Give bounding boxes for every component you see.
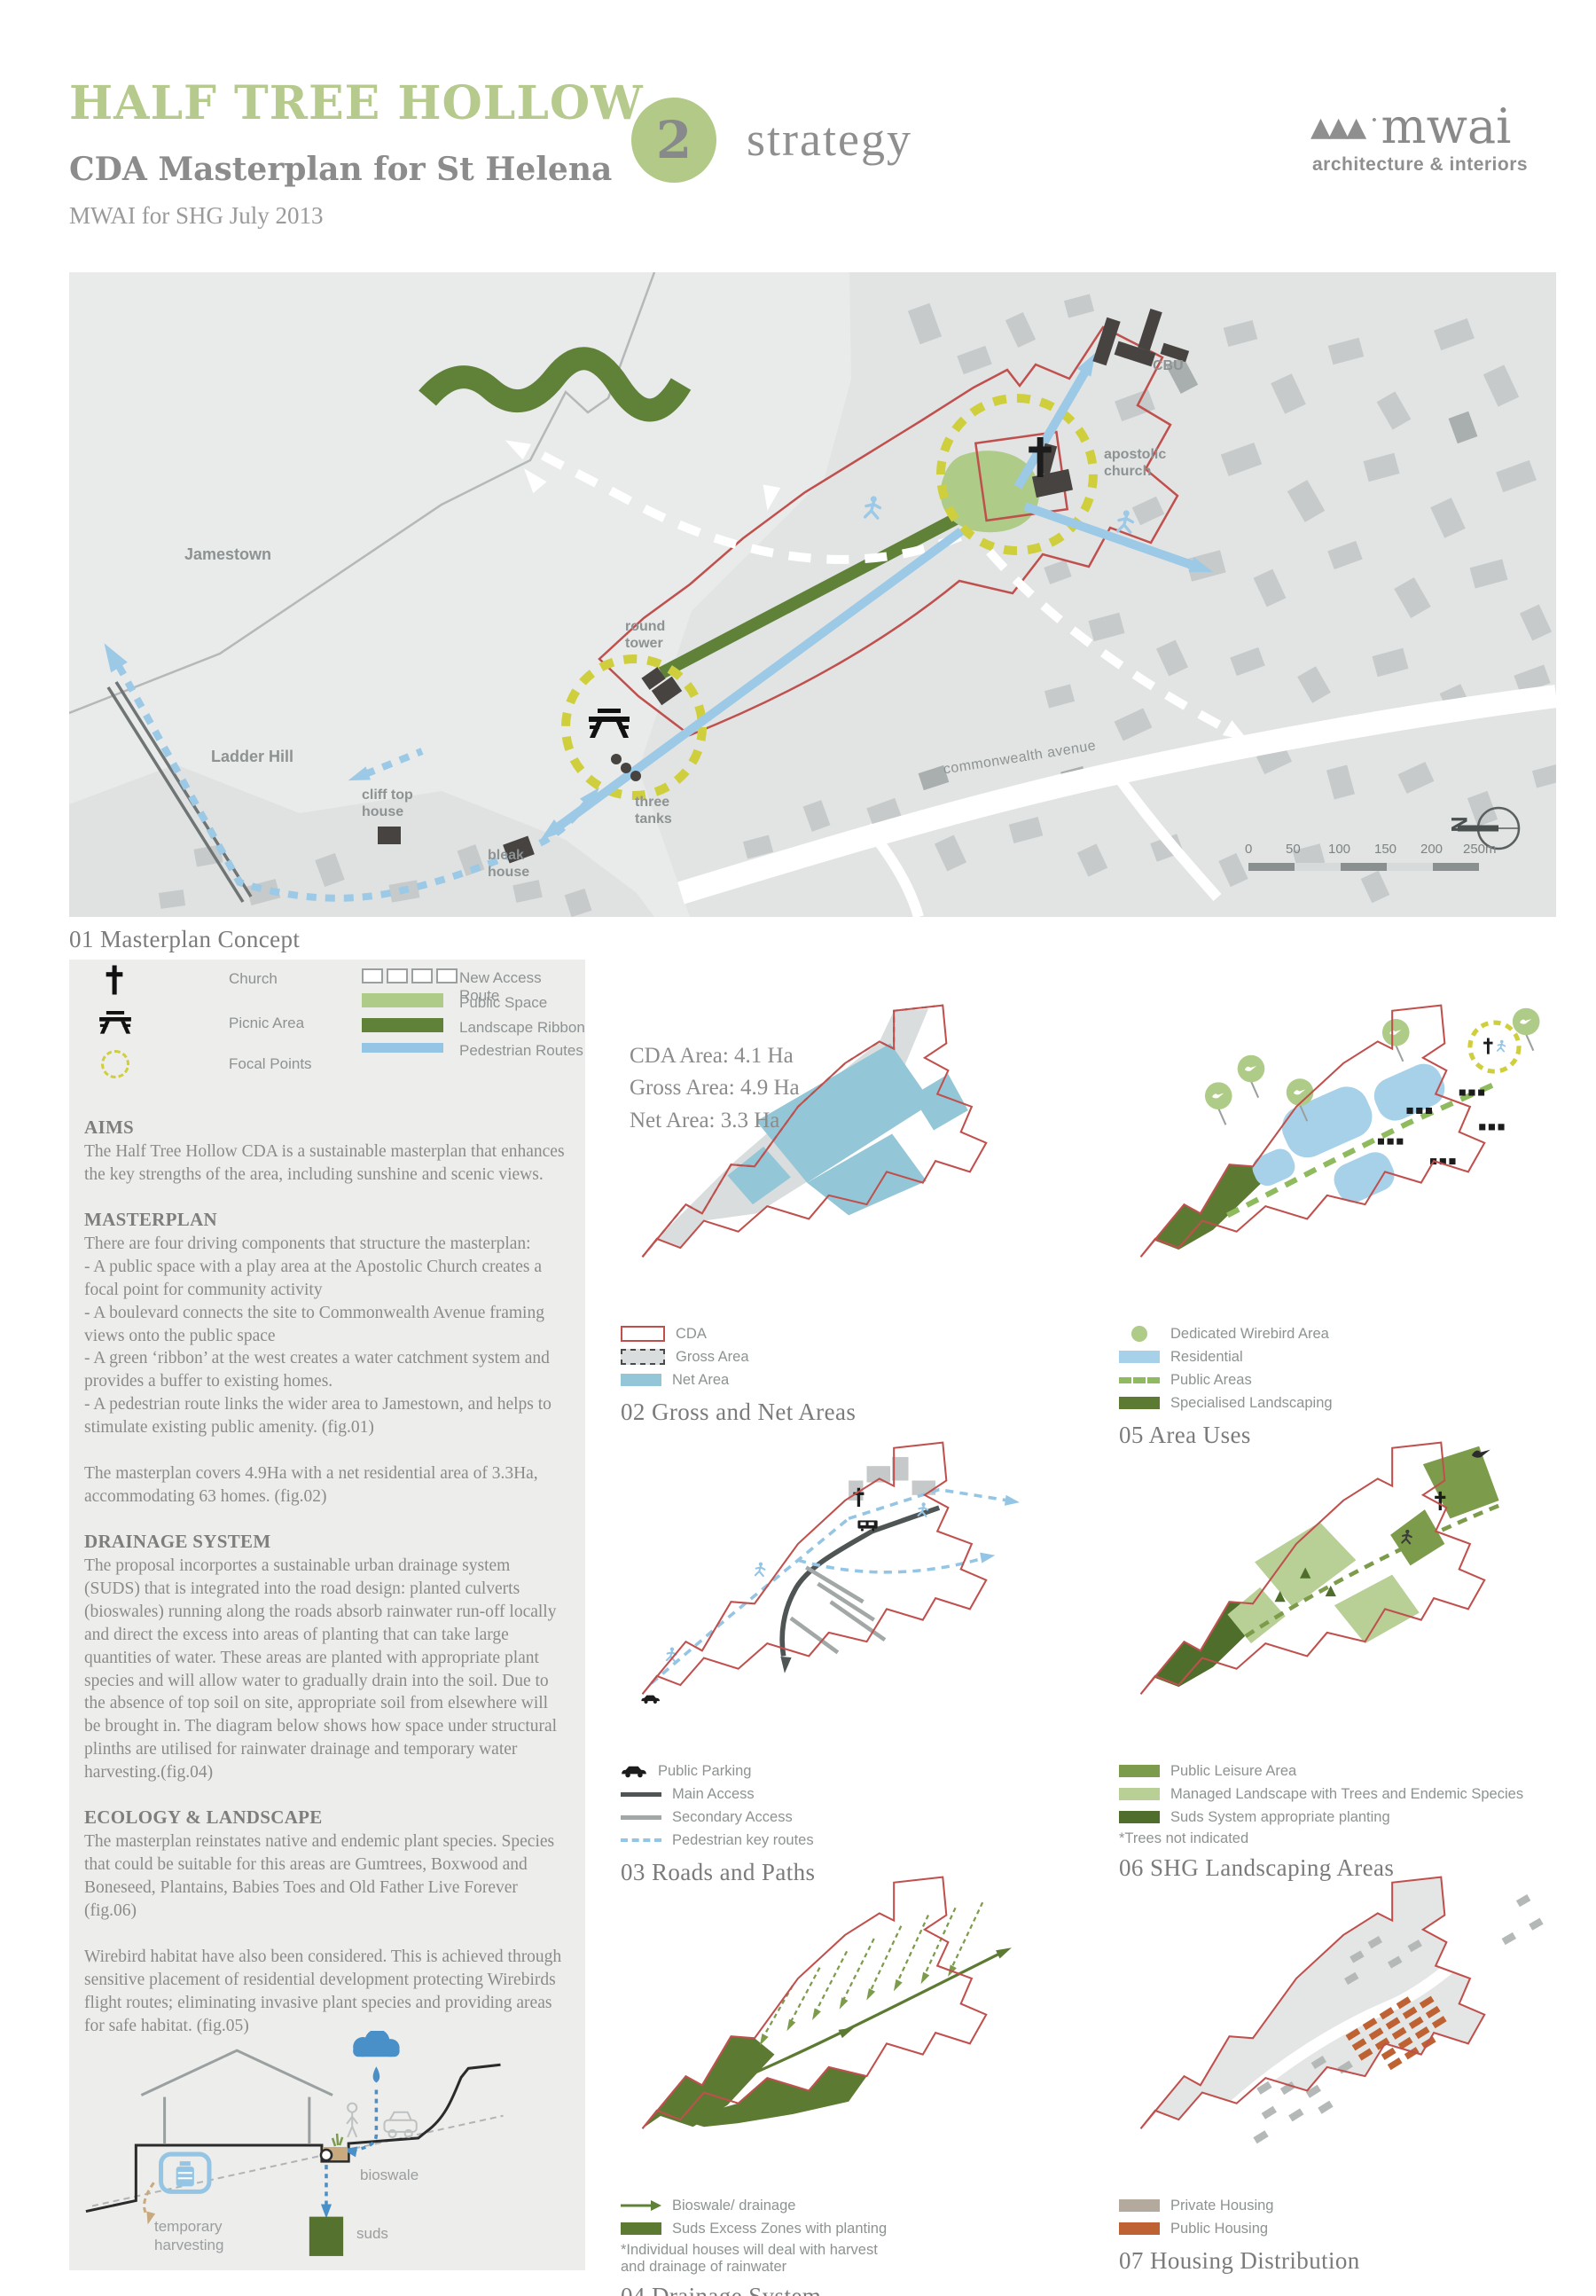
- fig04-block: Bioswale/ drainage Suds Excess Zones wit…: [621, 1859, 1082, 2296]
- section-drainage: DRAINAGE SYSTEM The proposal incorportes…: [84, 1531, 568, 1784]
- car-icon: [641, 1696, 660, 1704]
- pedestrian-key-routes: [652, 1490, 1008, 1683]
- outlet: [321, 2150, 332, 2160]
- section-aims: AIMS The Half Tree Hollow CDA is a susta…: [84, 1117, 568, 1187]
- public-housing-swatch: [1119, 2222, 1160, 2235]
- cda-area-value: CDA Area: 4.1 Ha: [630, 1040, 800, 1072]
- map-legend: Church Picnic Area Focal Points New Acce…: [69, 960, 585, 1094]
- legend-church-label: Church: [229, 970, 278, 988]
- fig07-map-svg: [1119, 1859, 1562, 2194]
- legend-label: Public Parking: [658, 1763, 751, 1780]
- scale-tick: 250m: [1463, 842, 1497, 857]
- fig03-block: Public Parking Main Access Secondary Acc…: [621, 1424, 1082, 1886]
- pedestrian-swatch: [362, 1043, 443, 1053]
- fig07-block: Private Housing Public Housing 07 Housin…: [1119, 1859, 1580, 2275]
- fig02-block: CDA Area: 4.1 Ha Gross Area: 4.9 Ha Net …: [621, 987, 1082, 1426]
- legend-label: Residential: [1170, 1349, 1243, 1366]
- suds-box: [309, 2217, 343, 2256]
- specialised-landscaping: [1140, 1164, 1265, 1257]
- legend-public-space-label: Public Space: [459, 994, 547, 1012]
- runner-icon: [1498, 1040, 1506, 1052]
- specialised-swatch: [1119, 1397, 1160, 1409]
- church-icon: [105, 965, 124, 995]
- label-bleak-house: bleak house: [488, 847, 529, 881]
- label-temporary-harvesting: temporary harvesting: [154, 2217, 223, 2255]
- net-area-value: Net Area: 3.3 Ha: [630, 1105, 800, 1137]
- legend-label: Bioswale/ drainage: [672, 2198, 795, 2214]
- legend-label: Gross Area: [676, 1349, 749, 1366]
- legend-label: Pedestrian key routes: [672, 1832, 814, 1849]
- legend-label: Public Areas: [1170, 1372, 1252, 1389]
- secondary-access-swatch: [621, 1815, 661, 1820]
- flow-arrowheads: [756, 1964, 957, 2047]
- label-apostolic-church: apostolic church: [1104, 446, 1166, 480]
- fig02-map-svg: [621, 987, 1064, 1322]
- scale-tick: 50: [1286, 842, 1301, 857]
- fig04-caption: 04 Drainage System: [621, 2283, 1082, 2296]
- residential-swatch: [1119, 1351, 1160, 1363]
- scale-tick: 200: [1420, 842, 1443, 857]
- legend-picnic-label: Picnic Area: [229, 1015, 304, 1032]
- bioswale-arrow-icon: [621, 2199, 661, 2212]
- legend-focal-label: Focal Points: [229, 1055, 312, 1073]
- ground-line: [86, 2065, 501, 2211]
- fig04-note: *Individual houses will deal with harves…: [621, 2242, 1082, 2276]
- page-subtitle: CDA Masterplan for St Helena: [69, 151, 612, 188]
- section-body: There are four driving components that s…: [84, 1233, 568, 1508]
- net-swatch: [621, 1374, 661, 1386]
- leisure-swatch: [1119, 1765, 1160, 1777]
- scale-tick: 100: [1328, 842, 1350, 857]
- legend-label: Suds System appropriate planting: [1170, 1809, 1390, 1826]
- runner-icon: [755, 1563, 765, 1577]
- section-number-badge: 2: [631, 98, 716, 183]
- fig01-caption: 01 Masterplan Concept: [69, 926, 300, 953]
- fig05-map-svg: [1119, 987, 1562, 1322]
- house-outline: [141, 2050, 332, 2143]
- residential-areas: [1248, 1058, 1451, 1208]
- section-masterplan: MASTERPLAN There are four driving compon…: [84, 1209, 568, 1508]
- section-heading: MASTERPLAN: [84, 1209, 568, 1231]
- main-access: [782, 1532, 872, 1657]
- mwai-logo: ▲▲▲ · mwai architecture & interiors: [1310, 103, 1568, 176]
- fig02-caption: 02 Gross and Net Areas: [621, 1399, 1082, 1426]
- rain-cloud-icon: [353, 2031, 399, 2082]
- fig04-map-svg: [621, 1859, 1064, 2194]
- legend-label: Dedicated Wirebird Area: [1170, 1326, 1329, 1343]
- label-cbu: CBU: [1153, 357, 1184, 374]
- section-label: strategy: [747, 112, 912, 167]
- main-access-spur: [872, 1508, 940, 1532]
- byline: MWAI for SHG July 2013: [69, 202, 324, 230]
- fig05-block: Dedicated Wirebird Area Residential Publ…: [1119, 987, 1580, 1449]
- public-areas-swatch: [1119, 1377, 1160, 1383]
- legend-pedestrian-label: Pedestrian Routes: [459, 1042, 583, 1060]
- secondary-access: [791, 1567, 885, 1652]
- fig01-map-svg: [69, 272, 1556, 917]
- focal-point-icon: [101, 1050, 129, 1078]
- label-three-tanks: three tanks: [635, 794, 672, 827]
- masterplan-sheet: HALF TREE HOLLOW CDA Masterplan for St H…: [0, 0, 1596, 2296]
- legend-label: Net Area: [672, 1372, 729, 1389]
- car-swatch-icon: [621, 1765, 647, 1778]
- label-bioswale: bioswale: [360, 2166, 419, 2184]
- car-outline-icon: [384, 2112, 416, 2137]
- pedestrian-routes-swatch: [621, 1838, 661, 1842]
- managed-landscape: [1227, 1522, 1419, 1643]
- wirebird-swatch: [1131, 1326, 1147, 1342]
- logo-tagline: architecture & interiors: [1312, 154, 1568, 176]
- suds-section-diagram: temporary harvesting bioswale suds: [78, 2031, 580, 2263]
- legend-label: Managed Landscape with Trees and Endemic…: [1170, 1786, 1523, 1803]
- public-space-swatch: [362, 993, 443, 1007]
- legend-label: CDA: [676, 1326, 707, 1343]
- section-heading: DRAINAGE SYSTEM: [84, 1531, 568, 1553]
- fig07-caption: 07 Housing Distribution: [1119, 2247, 1580, 2275]
- label-jamestown: Jamestown: [184, 545, 271, 565]
- label-suds: suds: [356, 2224, 388, 2243]
- section-body: The proposal incorportes a sustainable u…: [84, 1555, 568, 1784]
- bioswale-plant: [332, 2134, 342, 2146]
- sidebar-panel: Church Picnic Area Focal Points New Acce…: [69, 960, 585, 2270]
- cda-swatch: [621, 1326, 665, 1342]
- gross-area-value: Gross Area: 4.9 Ha: [630, 1072, 800, 1104]
- legend-label: Public Housing: [1170, 2221, 1268, 2237]
- section-heading: ECOLOGY & LANDSCAPE: [84, 1806, 568, 1829]
- section-body: The masterplan reinstates native and end…: [84, 1830, 568, 2037]
- legend-label: Main Access: [672, 1786, 755, 1803]
- fig02-stats: CDA Area: 4.1 Ha Gross Area: 4.9 Ha Net …: [630, 1040, 800, 1137]
- logo-triangles-icon: ▲▲▲: [1310, 112, 1364, 143]
- private-housing-swatch: [1119, 2199, 1160, 2212]
- legend-label: Secondary Access: [672, 1809, 793, 1826]
- fig03-map-svg: [621, 1424, 1064, 1759]
- fig06-map-svg: [1119, 1424, 1562, 1759]
- legend-ribbon-label: Landscape Ribbon: [459, 1019, 585, 1037]
- church-cross-icon: [1483, 1038, 1492, 1054]
- managed-swatch: [1119, 1788, 1160, 1800]
- picnic-icon: [98, 1011, 133, 1036]
- scale-tick: 150: [1374, 842, 1396, 857]
- label-cliff-top-house: cliff top house: [362, 787, 413, 820]
- main-access-swatch: [621, 1792, 661, 1797]
- gross-swatch: [621, 1349, 665, 1365]
- suds-diagram-svg: [78, 2031, 580, 2263]
- person-outline-icon: [347, 2104, 357, 2137]
- wirebird-areas: [1205, 1008, 1540, 1125]
- landscape-ribbon-swatch: [362, 1018, 443, 1032]
- section-heading: AIMS: [84, 1117, 568, 1139]
- fig01-masterplan-map: Jamestown Ladder Hill cliff top house bl…: [69, 272, 1556, 917]
- label-ladder-hill: Ladder Hill: [211, 748, 293, 767]
- new-access-swatch: [362, 968, 458, 983]
- legend-label: Specialised Landscaping: [1170, 1395, 1333, 1412]
- label-round-tower: round tower: [625, 618, 665, 652]
- suds-zones-swatch: [621, 2222, 661, 2235]
- logo-dot-icon: ·: [1369, 104, 1379, 137]
- legend-label: Private Housing: [1170, 2198, 1273, 2214]
- fig06-block: Public Leisure Area Managed Landscape wi…: [1119, 1424, 1580, 1882]
- focal-point-circle: [1470, 1023, 1519, 1071]
- logo-wordmark: mwai: [1381, 103, 1512, 151]
- fig06-note: *Trees not indicated: [1119, 1830, 1580, 1847]
- suds-planting-swatch: [1119, 1811, 1160, 1823]
- legend-label: Public Leisure Area: [1170, 1763, 1296, 1780]
- page-title: HALF TREE HOLLOW: [69, 76, 644, 130]
- section-body: The Half Tree Hollow CDA is a sustainabl…: [84, 1140, 568, 1187]
- water-bottle-icon: [176, 2161, 194, 2186]
- scale-bar: 0 50 100 150 200 250m: [1248, 842, 1532, 877]
- legend-label: Suds Excess Zones with planting: [672, 2221, 887, 2237]
- north-label: N: [1448, 816, 1474, 832]
- scale-tick: 0: [1245, 842, 1252, 857]
- section-ecology: ECOLOGY & LANDSCAPE The masterplan reins…: [84, 1806, 568, 2037]
